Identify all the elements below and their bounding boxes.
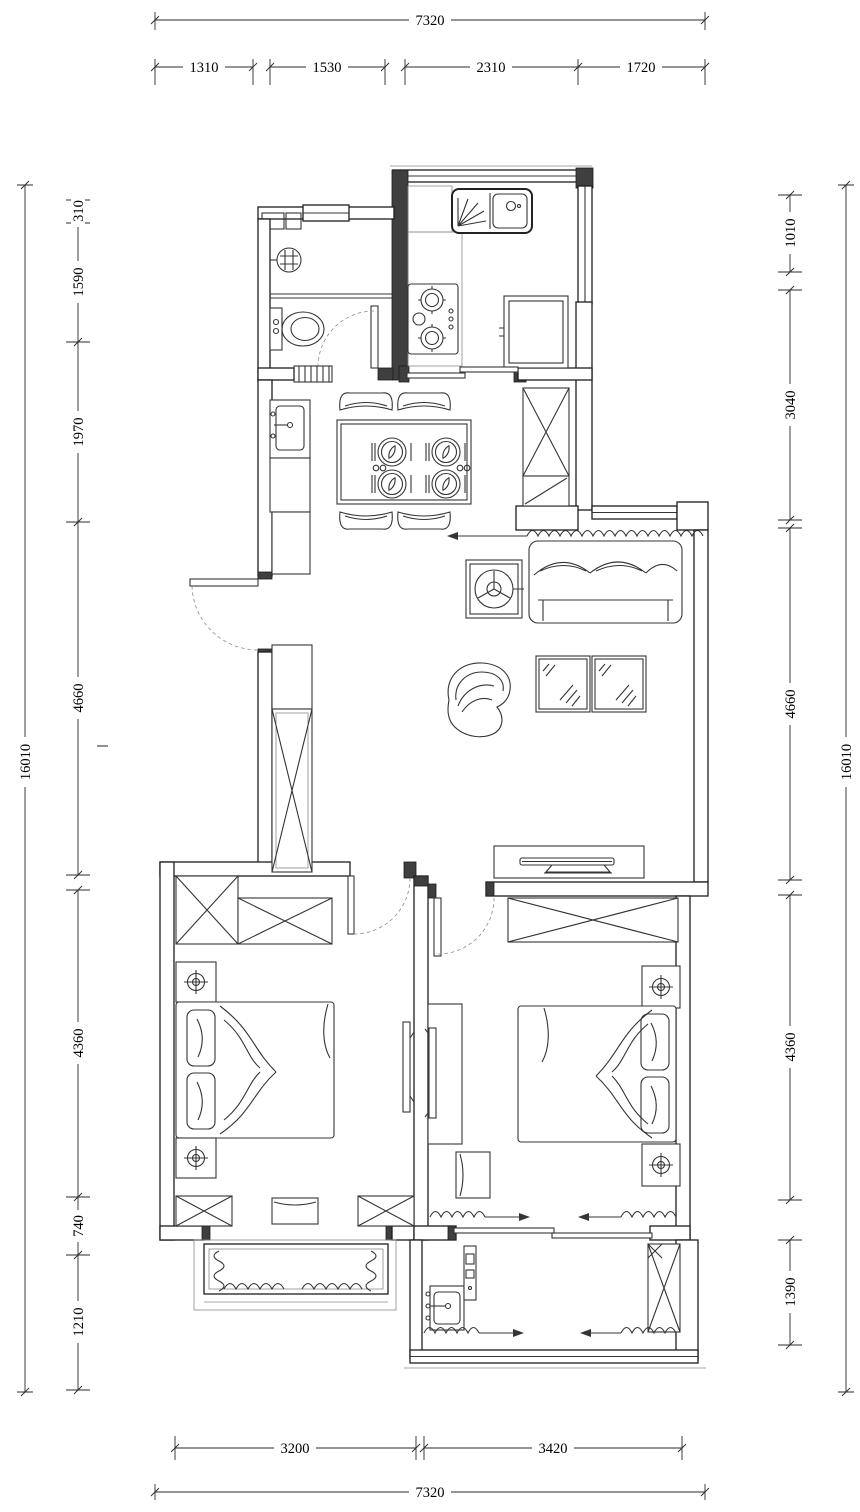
dim-label-top-1310: 1310 <box>190 60 219 76</box>
wash-basin-symbol <box>270 400 310 458</box>
shoe-cabinet <box>272 645 312 872</box>
living-room <box>272 531 703 879</box>
dim-label-top-1720: 1720 <box>627 60 656 76</box>
dim-chain-right-overall: 16010 <box>838 181 855 1396</box>
walls <box>97 166 708 1368</box>
entry-door <box>190 579 258 650</box>
wardrobe-x-symbol <box>176 876 332 944</box>
counter <box>408 186 452 232</box>
dim-label-left-740: 740 <box>71 1215 87 1237</box>
dim-label-bottom-3200: 3200 <box>281 1441 310 1457</box>
kitchen <box>407 186 568 378</box>
cabinet <box>272 512 310 574</box>
dim-label-right-3040: 3040 <box>783 391 799 420</box>
dim-label-left-4660: 4660 <box>71 684 87 713</box>
balcony <box>424 1244 680 1337</box>
bay-window <box>194 1240 396 1310</box>
bedroom-right <box>425 898 680 1238</box>
dining-table-4-seat-symbol <box>337 393 471 529</box>
fan-unit-symbol <box>466 560 524 618</box>
lounge-chair-symbol <box>448 663 510 737</box>
dim-label-right-4360: 4360 <box>783 1033 799 1062</box>
nightstand-lamp-symbol <box>176 962 216 1002</box>
dim-label-left-1970: 1970 <box>71 418 87 447</box>
bench-symbol <box>272 1198 318 1224</box>
wall-tv-symbol <box>403 1022 414 1112</box>
wardrobe-x-symbol <box>648 1244 680 1332</box>
floor-plan-canvas: 7320 1310 1530 2310 1720 16010 <box>0 0 860 1512</box>
dim-label-top-overall: 7320 <box>416 13 445 29</box>
dim-chain-top-segments: 1310 1530 2310 1720 <box>151 59 709 85</box>
toilet-symbol <box>270 308 324 350</box>
dim-label-left-1210: 1210 <box>71 1308 87 1337</box>
bedroom-left <box>176 876 414 1226</box>
dim-chain-left-overall: 16010 <box>17 181 34 1396</box>
dining-area <box>270 388 569 574</box>
sliding-door-symbol <box>407 367 518 378</box>
dim-label-left-310: 310 <box>71 200 87 222</box>
sofa-symbol <box>529 541 682 623</box>
dim-chain-bottom-overall: 7320 <box>151 1484 709 1501</box>
sliding-door-symbol <box>454 1228 652 1238</box>
curtain-arrow-symbol <box>447 531 703 541</box>
bedroom-right-door <box>434 898 494 956</box>
water-heater-symbol <box>464 1246 476 1300</box>
dim-chain-bottom-segments: 3200 3420 <box>171 1436 686 1460</box>
dim-chain-left-segments: 310 1590 1970 4660 4360 740 1210 <box>66 195 90 1394</box>
wardrobe-x-symbol <box>508 898 678 942</box>
nightstand-lamp-symbol <box>642 1144 680 1186</box>
double-bed-symbol <box>176 1002 334 1138</box>
dim-label-right-4660: 4660 <box>783 690 799 719</box>
dim-label-right-1390: 1390 <box>783 1278 799 1307</box>
dim-label-bottom-3420: 3420 <box>539 1441 568 1457</box>
double-bed-symbol <box>518 1006 676 1142</box>
dim-chain-right-segments: 1010 3040 4660 4360 1390 <box>778 191 802 1349</box>
floor-plan-page: 7320 1310 1530 2310 1720 16010 <box>0 0 860 1512</box>
fridge-symbol <box>499 296 568 368</box>
dim-label-left-1590: 1590 <box>71 268 87 297</box>
kitchen-sink-symbol <box>452 189 532 233</box>
wardrobe-x-symbol <box>523 388 569 506</box>
dimension-annotations: 7320 1310 1530 2310 1720 16010 <box>17 12 855 1501</box>
nightstand-lamp-symbol <box>642 966 680 1008</box>
floor-drain-symbol <box>270 248 301 272</box>
bathroom <box>270 248 392 368</box>
counter <box>408 232 462 366</box>
shower-screen <box>270 294 392 298</box>
dim-label-top-1530: 1530 <box>313 60 342 76</box>
dim-chain-top-overall: 7320 <box>151 12 709 30</box>
dim-label-top-2310: 2310 <box>477 60 506 76</box>
dim-label-right-overall: 16010 <box>839 744 855 780</box>
laundry-sink-symbol <box>426 1286 464 1330</box>
bench-symbol <box>456 1152 490 1198</box>
gas-stove-symbol <box>408 284 458 354</box>
coffee-table-symbol <box>536 656 646 712</box>
nightstand-lamp-symbol <box>176 1138 216 1178</box>
dim-label-left-overall: 16010 <box>18 744 34 780</box>
bedroom-left-door <box>348 876 410 934</box>
dim-label-right-1010: 1010 <box>783 219 799 248</box>
curtain-arrow-symbol <box>430 1212 676 1222</box>
bathroom-door <box>318 306 378 368</box>
dim-label-bottom-overall: 7320 <box>416 1485 445 1501</box>
cabinet <box>270 458 310 512</box>
dim-label-left-4360: 4360 <box>71 1029 87 1058</box>
tv-cabinet-symbol <box>494 846 644 878</box>
